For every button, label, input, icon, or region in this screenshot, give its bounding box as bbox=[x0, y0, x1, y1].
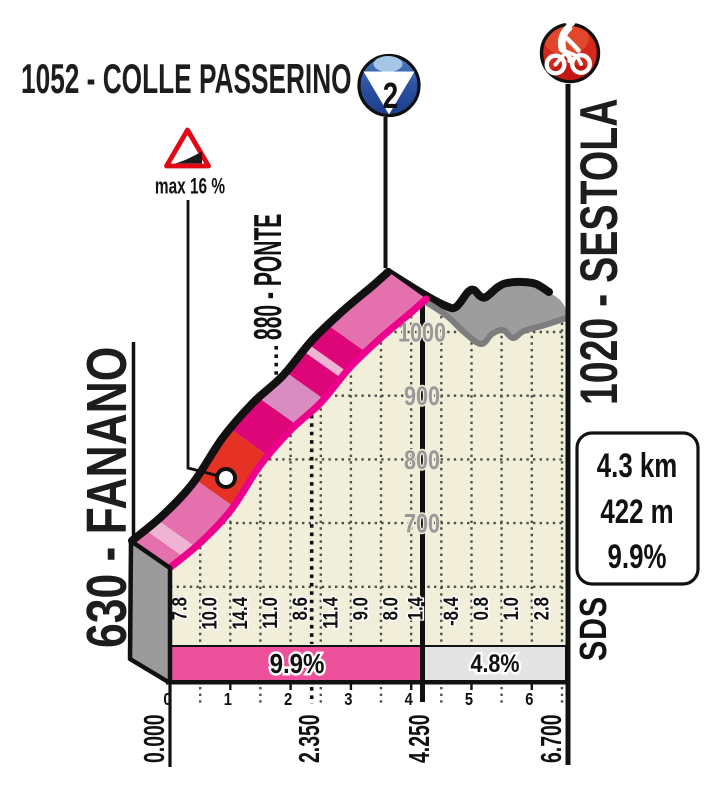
svg-text:0.000: 0.000 bbox=[139, 714, 171, 763]
svg-text:7.8: 7.8 bbox=[169, 597, 192, 620]
svg-text:4.3 km: 4.3 km bbox=[597, 448, 677, 485]
svg-text:8.0: 8.0 bbox=[380, 597, 403, 620]
svg-text:630 - FANANO: 630 - FANANO bbox=[75, 347, 139, 648]
svg-text:2.8: 2.8 bbox=[531, 597, 554, 620]
svg-text:11.0: 11.0 bbox=[259, 597, 282, 629]
svg-text:5: 5 bbox=[465, 690, 473, 710]
svg-text:9.9%: 9.9% bbox=[270, 647, 325, 679]
svg-text:6: 6 bbox=[525, 690, 533, 710]
svg-text:max 16 %: max 16 % bbox=[155, 175, 225, 199]
svg-text:0.8: 0.8 bbox=[470, 597, 493, 620]
svg-text:1000: 1000 bbox=[398, 318, 446, 348]
svg-text:1.4: 1.4 bbox=[405, 597, 428, 621]
svg-text:4: 4 bbox=[405, 690, 414, 710]
svg-text:900: 900 bbox=[404, 382, 440, 412]
svg-text:700: 700 bbox=[404, 509, 440, 539]
svg-text:-8.4: -8.4 bbox=[440, 597, 463, 626]
svg-text:1.0: 1.0 bbox=[501, 597, 524, 620]
svg-text:800: 800 bbox=[404, 446, 440, 476]
svg-text:6.700: 6.700 bbox=[536, 714, 568, 763]
svg-text:2: 2 bbox=[284, 690, 292, 710]
svg-text:SDS: SDS bbox=[573, 596, 615, 661]
svg-text:880 - PONTE: 880 - PONTE bbox=[246, 214, 290, 340]
svg-text:14.4: 14.4 bbox=[229, 597, 252, 630]
svg-text:3: 3 bbox=[344, 690, 352, 710]
svg-text:8.6: 8.6 bbox=[290, 597, 313, 620]
svg-text:4.8%: 4.8% bbox=[471, 649, 520, 677]
svg-text:1020 - SESTOLA: 1020 - SESTOLA bbox=[569, 98, 628, 405]
svg-text:1052 - COLLE PASSERINO: 1052 - COLLE PASSERINO bbox=[21, 56, 352, 103]
svg-text:10.0: 10.0 bbox=[199, 597, 222, 630]
svg-text:422 m: 422 m bbox=[600, 494, 673, 531]
svg-text:1: 1 bbox=[224, 690, 232, 710]
svg-text:11.4: 11.4 bbox=[320, 597, 343, 629]
svg-text:4.250: 4.250 bbox=[404, 714, 436, 763]
svg-text:9.9%: 9.9% bbox=[608, 539, 667, 576]
svg-text:2.350: 2.350 bbox=[294, 714, 326, 763]
svg-text:2: 2 bbox=[383, 75, 398, 116]
svg-text:9.0: 9.0 bbox=[350, 597, 373, 620]
